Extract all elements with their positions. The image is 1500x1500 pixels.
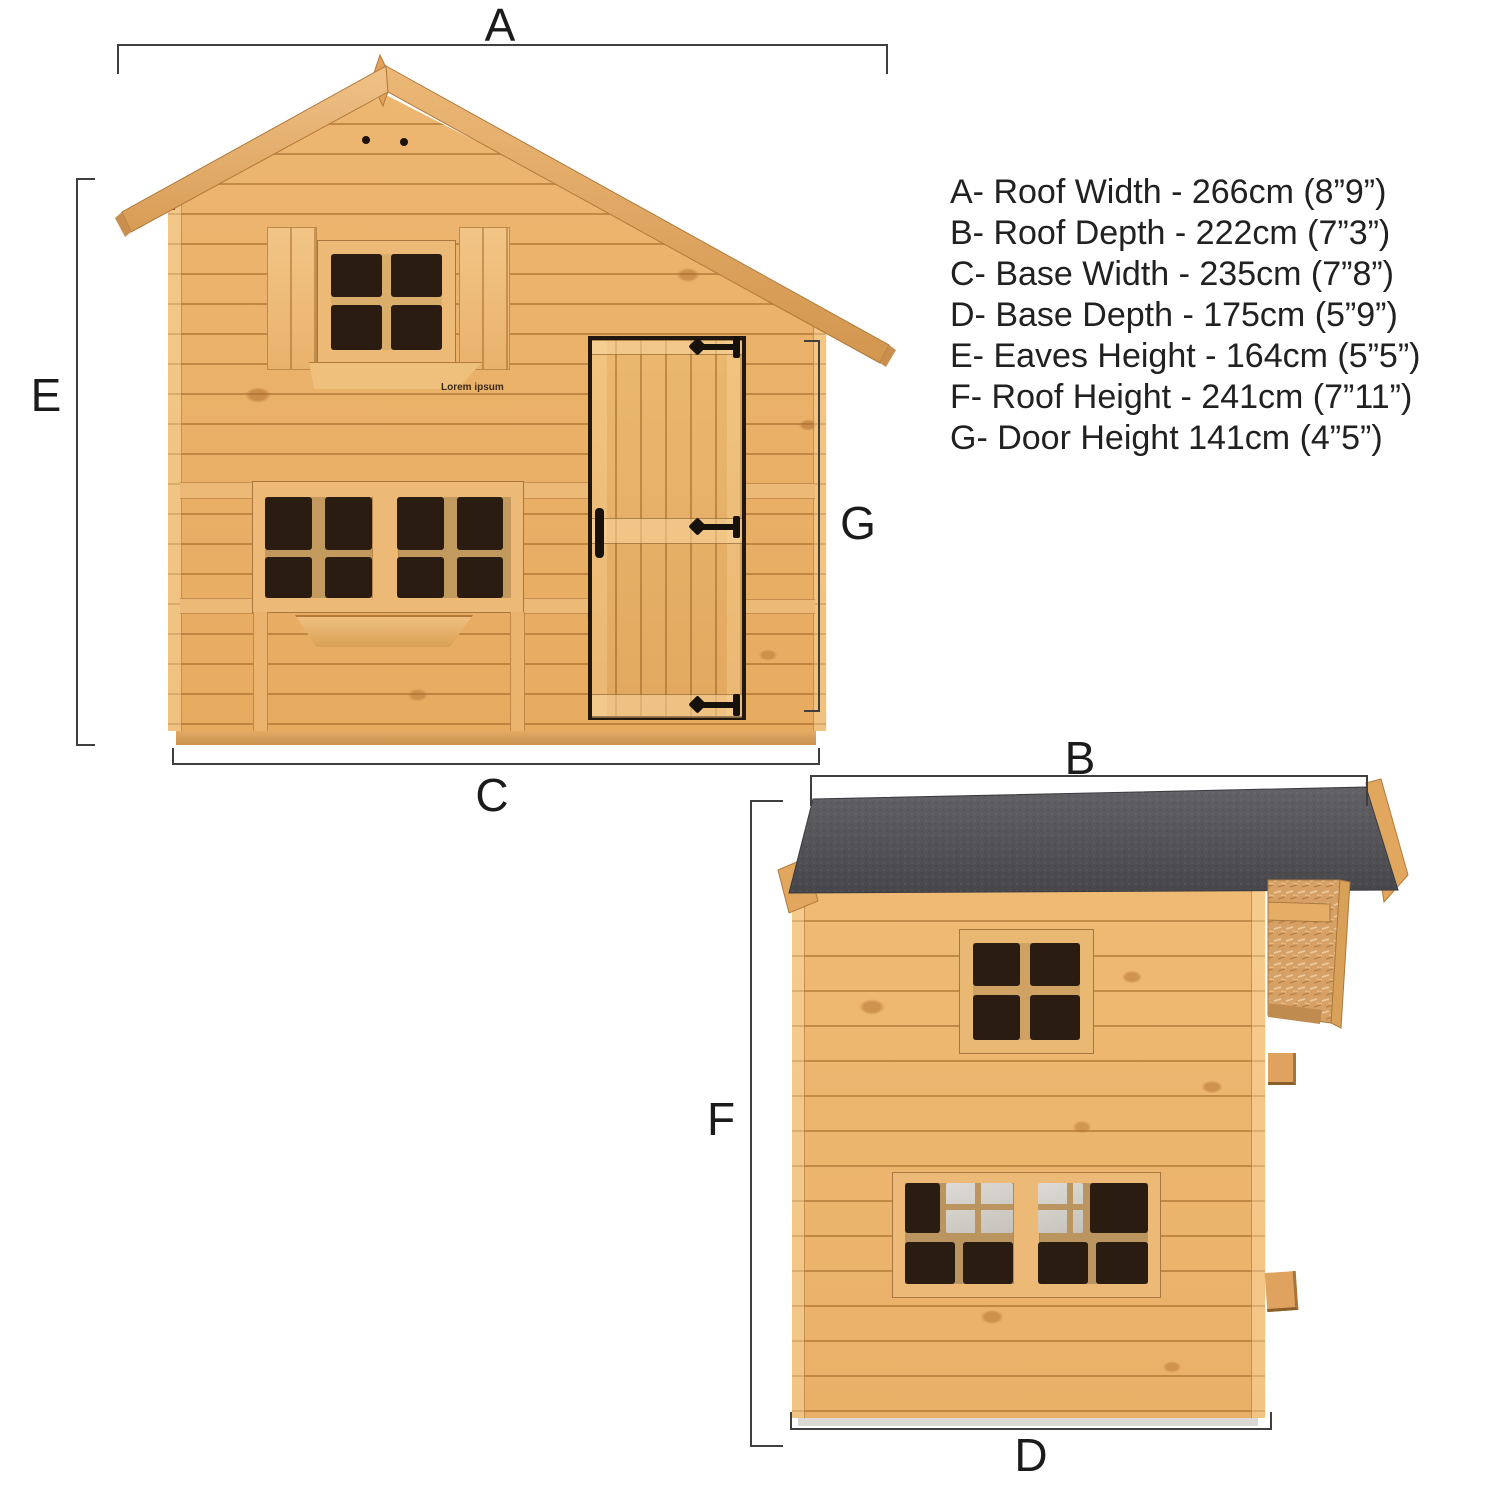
window-pane — [1090, 1183, 1148, 1233]
dim-label-b: B — [1056, 735, 1104, 781]
spec-line-base-width: C- Base Width - 235cm (7”8”) — [950, 254, 1490, 295]
side-roof — [770, 770, 1420, 1110]
side-foundation-strip — [798, 1418, 1258, 1426]
side-roof-felt-texture — [789, 787, 1398, 893]
dim-tick — [810, 775, 812, 806]
window-pane — [905, 1183, 940, 1233]
window-pane — [1038, 1242, 1088, 1284]
spec-line-door-height: G- Door Height 141cm (4”5”) — [950, 418, 1490, 459]
spec-line-roof-depth: B- Roof Depth - 222cm (7”3”) — [950, 213, 1490, 254]
roof-overhang-rafter — [1268, 902, 1330, 922]
spec-line-eaves-height: E- Eaves Height - 164cm (5”5”) — [950, 336, 1490, 377]
window-pane — [946, 1183, 1013, 1233]
roof-overhang-osb — [1268, 880, 1340, 1023]
playhouse-dimension-diagram: Lorem ipsum — [0, 0, 1500, 1500]
spec-line-roof-height: F- Roof Height - 241cm (7”11”) — [950, 377, 1490, 418]
window-mullion — [1013, 1183, 1040, 1284]
dim-line-roof-height — [750, 800, 752, 1447]
dim-tick — [750, 1445, 783, 1447]
window-pane — [1038, 1183, 1083, 1233]
window-pane — [963, 1242, 1013, 1284]
dim-tick — [790, 1412, 792, 1429]
dim-tick — [1270, 1412, 1272, 1429]
dim-tick — [1366, 775, 1368, 806]
spec-line-base-depth: D- Base Depth - 175cm (5”9”) — [950, 295, 1490, 336]
side-window-box-bracket — [1265, 1271, 1299, 1312]
dimension-spec-list: A- Roof Width - 266cm (8”9”) B- Roof Dep… — [950, 172, 1490, 459]
dim-label-d: D — [1006, 1432, 1056, 1478]
window-pane — [905, 1242, 955, 1284]
window-pane — [1096, 1242, 1148, 1284]
dim-tick — [750, 800, 783, 802]
spec-line-roof-width: A- Roof Width - 266cm (8”9”) — [950, 172, 1490, 213]
side-window-box-bracket — [1268, 1053, 1296, 1085]
dim-label-f: F — [700, 1096, 742, 1142]
